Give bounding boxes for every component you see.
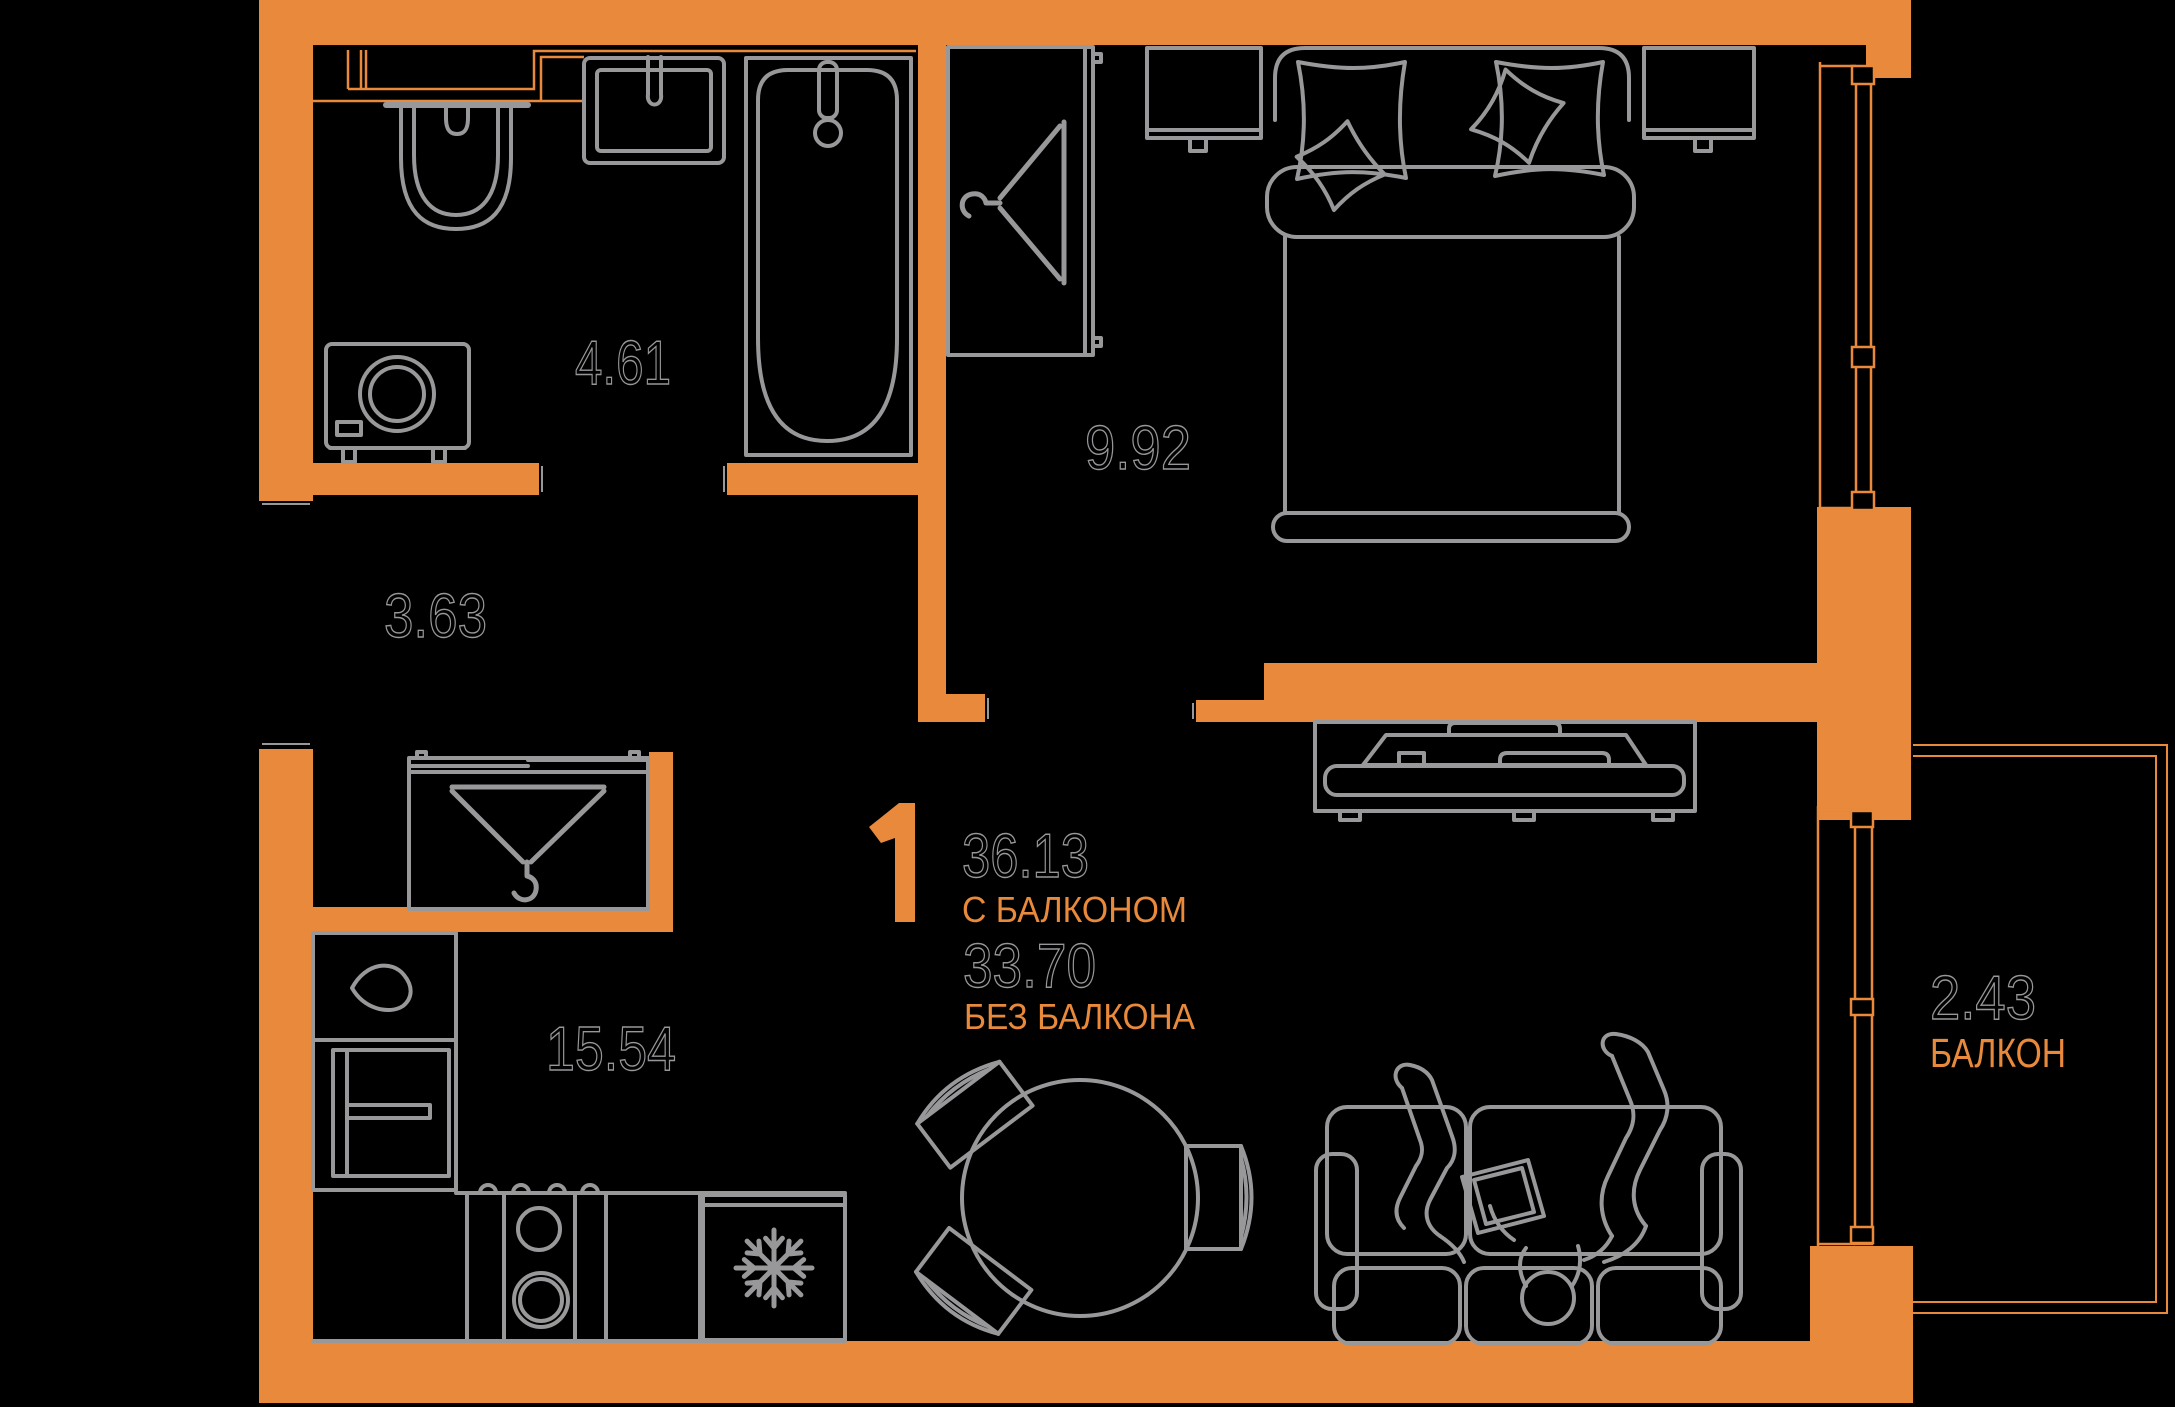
svg-text:15.54: 15.54 bbox=[546, 1015, 676, 1084]
svg-text:36.13: 36.13 bbox=[962, 822, 1089, 891]
svg-text:9.92: 9.92 bbox=[1085, 414, 1191, 483]
svg-text:3.63: 3.63 bbox=[384, 582, 487, 651]
svg-text:С БАЛКОНОМ: С БАЛКОНОМ bbox=[962, 889, 1187, 930]
svg-text:БЕЗ БАЛКОНА: БЕЗ БАЛКОНА bbox=[964, 996, 1195, 1037]
svg-text:БАЛКОН: БАЛКОН bbox=[1930, 1030, 2066, 1076]
svg-text:33.70: 33.70 bbox=[963, 932, 1096, 1001]
svg-text:4.61: 4.61 bbox=[575, 329, 671, 398]
svg-text:2.43: 2.43 bbox=[1930, 964, 2036, 1033]
